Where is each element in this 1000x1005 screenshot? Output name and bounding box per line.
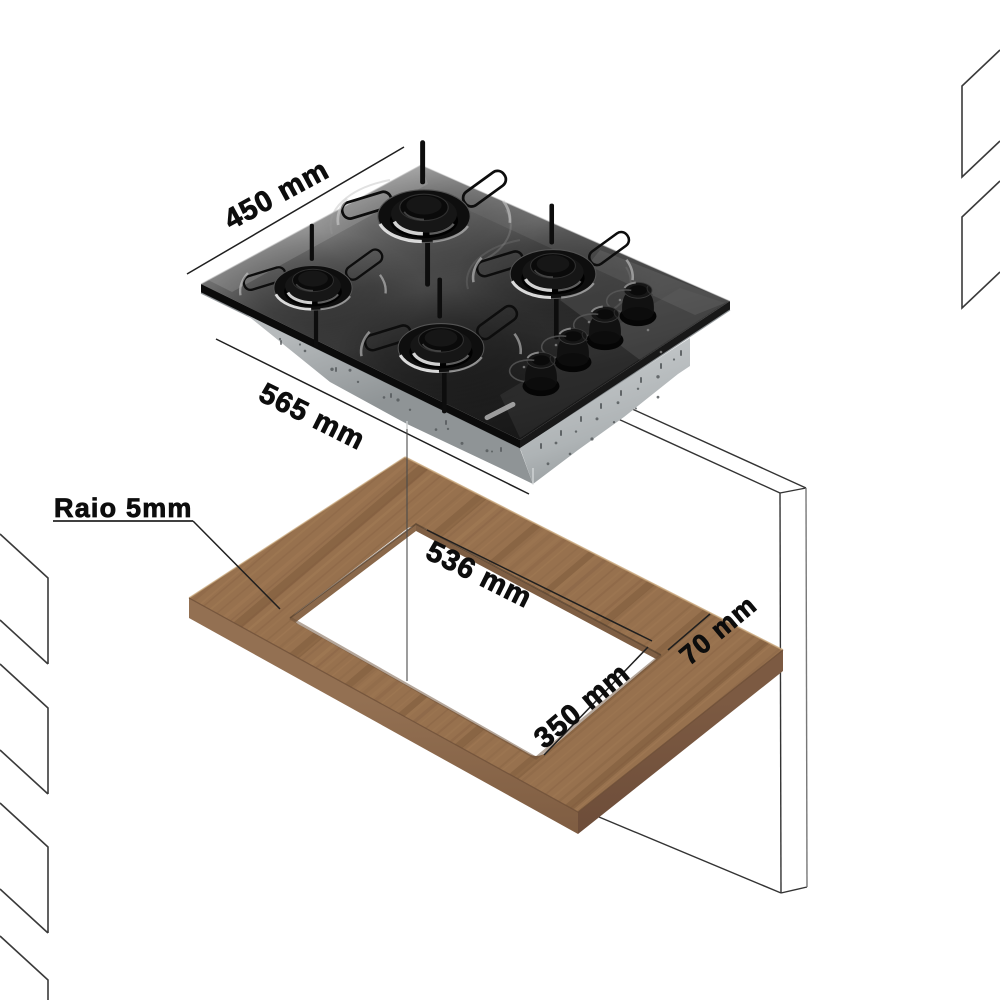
svg-text:Raio 5mm: Raio 5mm: [54, 493, 193, 523]
